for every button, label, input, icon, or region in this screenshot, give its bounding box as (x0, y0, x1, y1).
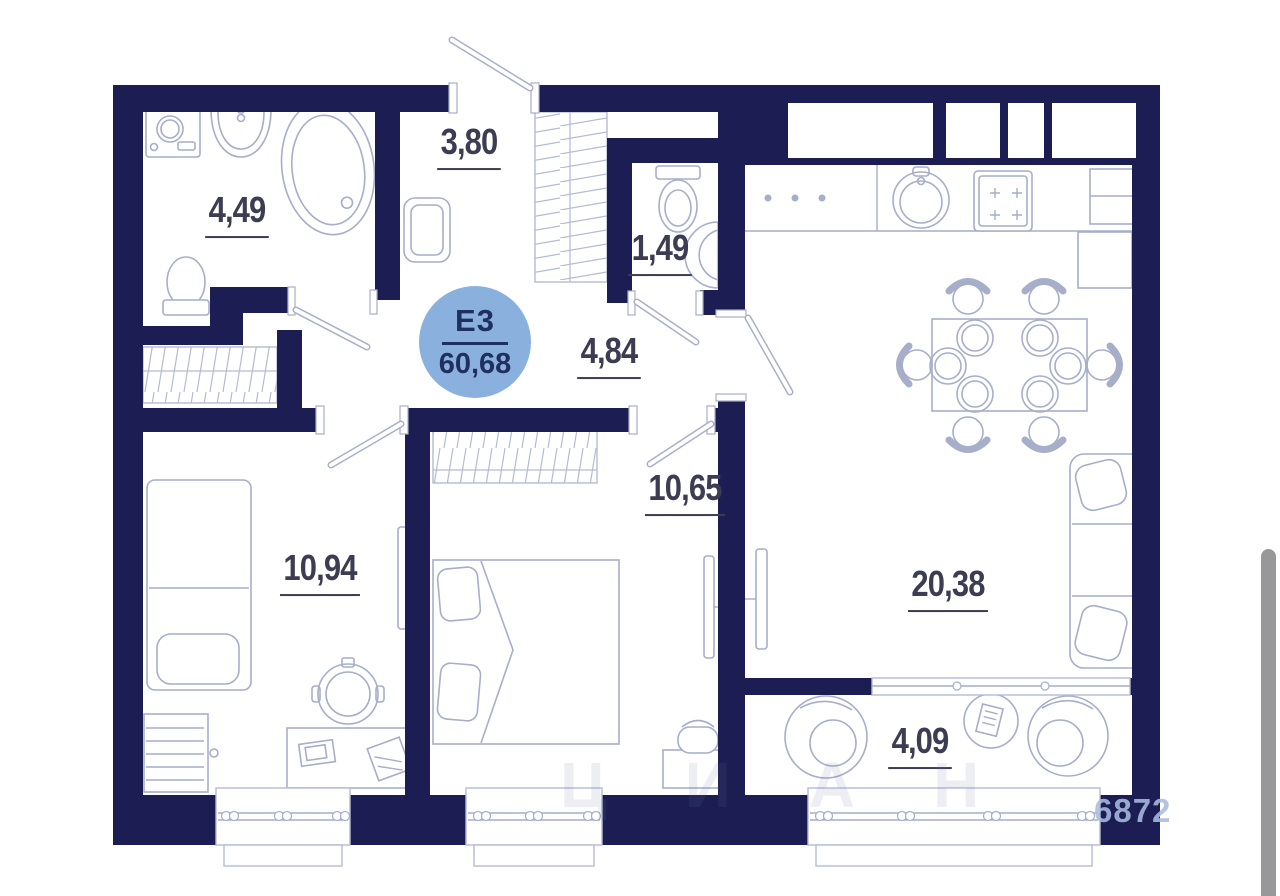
area-value-bathroom: 4,49 (205, 189, 269, 238)
fridge-icon (1090, 169, 1136, 224)
stove-icon (974, 171, 1032, 231)
watermark-logo: ЦИАН (560, 748, 1080, 822)
dining-table-icon (930, 319, 1087, 412)
unit-total-area: 60,68 (439, 350, 512, 379)
area-value-wc: 1,49 (628, 227, 692, 276)
unit-badge: E3 60,68 (419, 286, 531, 398)
area-label-hallway: 3,80 (437, 121, 501, 170)
scrollbar-thumb[interactable] (1261, 549, 1276, 896)
area-value-bedroom-2: 10,65 (645, 467, 725, 516)
kitchen-wall-windows (788, 103, 1136, 158)
hallway-console-icon (404, 198, 450, 262)
unit-number: E3 (455, 305, 495, 336)
area-value-corridor: 4,84 (577, 330, 641, 379)
bedroom-1-window (216, 788, 350, 866)
area-label-bedroom-2: 10,65 (645, 467, 725, 516)
area-label-corridor: 4,84 (577, 330, 641, 379)
kitchen-sink-icon (893, 167, 949, 228)
shelf-icon (144, 714, 218, 792)
living-tv-icon (745, 549, 767, 649)
double-bed-icon (433, 560, 619, 744)
wc-toilet-icon (656, 166, 700, 232)
entrance-door (452, 40, 530, 88)
area-value-living-kitchen: 20,38 (908, 563, 988, 612)
balcony-table-icon (964, 694, 1018, 748)
washing-machine-icon (146, 107, 200, 157)
pot-plant-icon (312, 658, 384, 724)
area-label-living-kitchen: 20,38 (908, 563, 988, 612)
area-label-bathroom: 4,49 (205, 189, 269, 238)
watermark-id: 6872 (1094, 792, 1171, 830)
area-value-hallway: 3,80 (437, 121, 501, 170)
hallway-closet-hatch (535, 112, 607, 282)
living-door (716, 310, 790, 401)
floor-plan-page: 4,49 3,80 1,49 4,84 10,94 10,65 20,38 4,… (0, 0, 1280, 896)
bedroom-2-wardrobe-hatch (433, 425, 597, 483)
bedroom-1-desk-icon (287, 728, 411, 788)
single-bed-icon (147, 480, 251, 690)
badge-divider (442, 342, 508, 345)
kitchen-cabinet-icon (1078, 232, 1132, 288)
bedroom-1-closet-hatch (143, 347, 277, 403)
living-balcony-glazing (872, 678, 1130, 695)
bathroom-toilet-icon (163, 257, 209, 315)
area-label-wc: 1,49 (628, 227, 692, 276)
bedroom-2-door (629, 406, 715, 464)
area-label-bedroom-1: 10,94 (280, 547, 360, 596)
bathtub-icon (273, 95, 383, 240)
area-value-bedroom-1: 10,94 (280, 547, 360, 596)
bedroom-1-door (316, 406, 408, 465)
